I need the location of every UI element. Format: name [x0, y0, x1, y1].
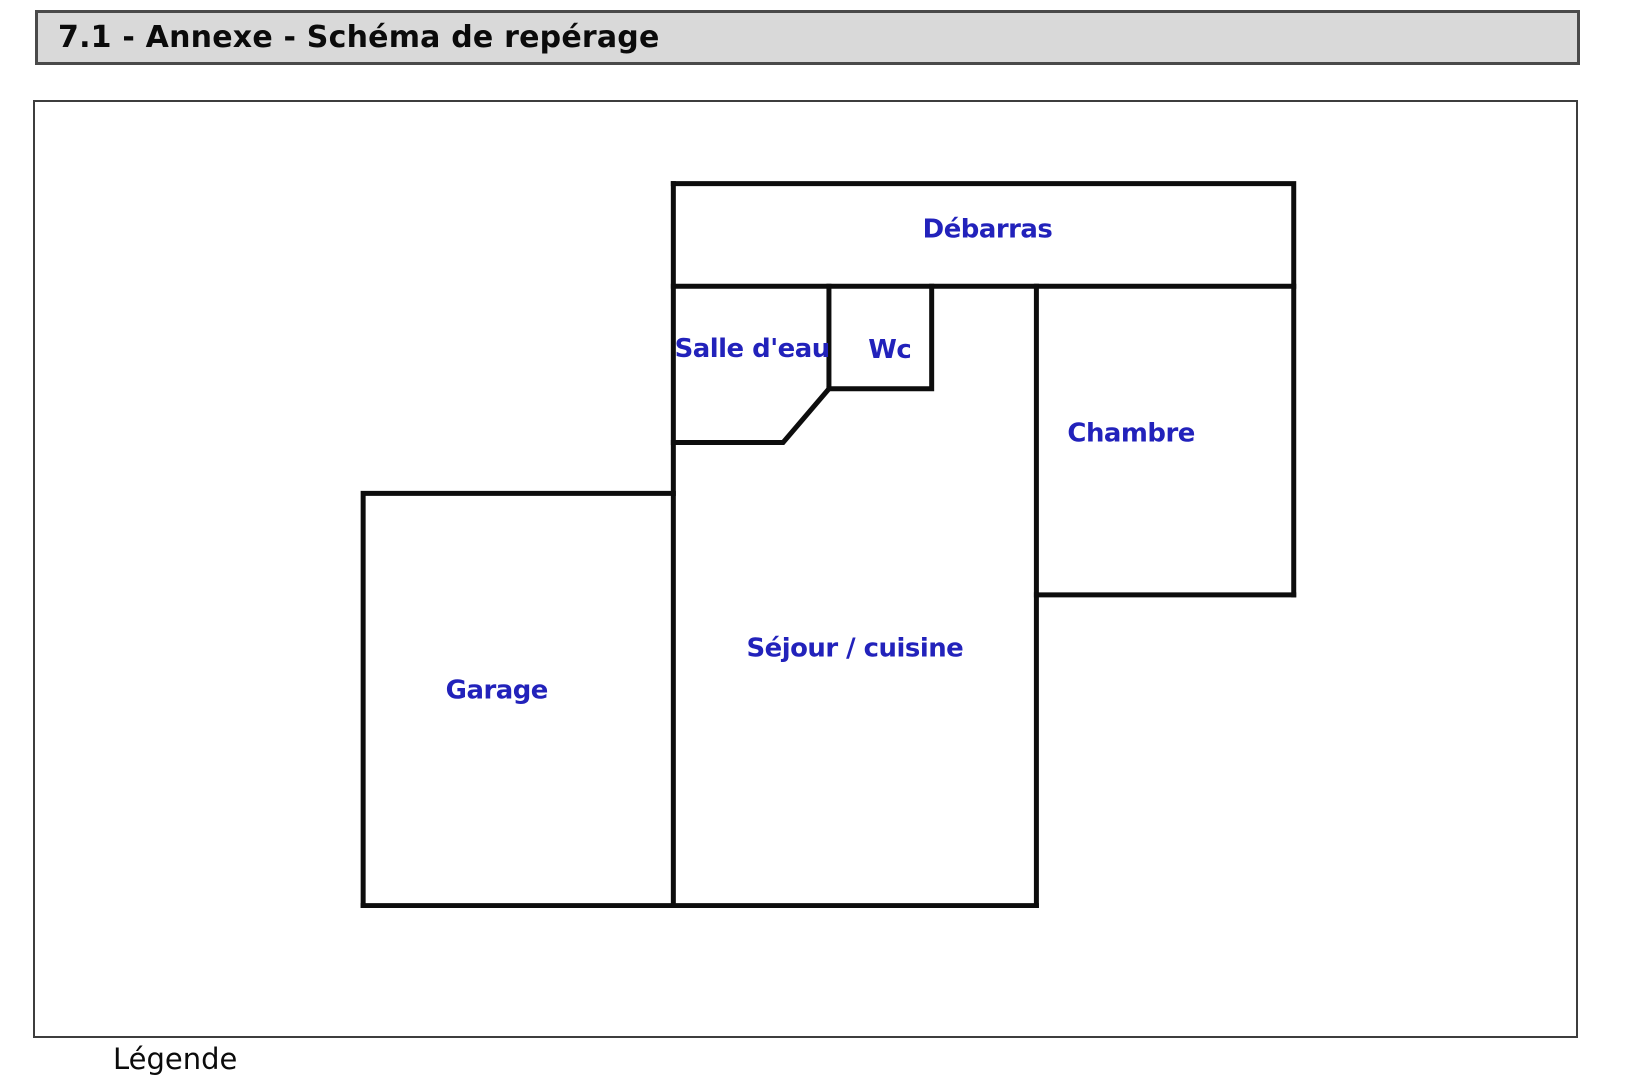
schema-frame: Débarras Salle d'eau Wc Chambre Séjour /… [33, 100, 1578, 1038]
section-title: 7.1 - Annexe - Schéma de repérage [38, 20, 660, 55]
room-label-sejour-cuisine: Séjour / cuisine [746, 634, 963, 664]
wall-top-and-right [673, 184, 1293, 595]
room-label-wc: Wc [868, 335, 911, 365]
section-header-bar: 7.1 - Annexe - Schéma de repérage [35, 10, 1580, 65]
room-label-chambre: Chambre [1067, 419, 1194, 449]
room-label-debarras: Débarras [923, 214, 1053, 244]
document-page: 7.1 - Annexe - Schéma de repérage [0, 0, 1641, 1080]
room-label-salle-eau: Salle d'eau [675, 334, 830, 364]
wall-salle-eau [673, 286, 829, 442]
floor-plan-walls [363, 184, 1294, 906]
room-label-garage: Garage [446, 675, 548, 705]
floor-plan-drawing: Débarras Salle d'eau Wc Chambre Séjour /… [35, 102, 1576, 1036]
legend-label: Légende [113, 1042, 237, 1076]
